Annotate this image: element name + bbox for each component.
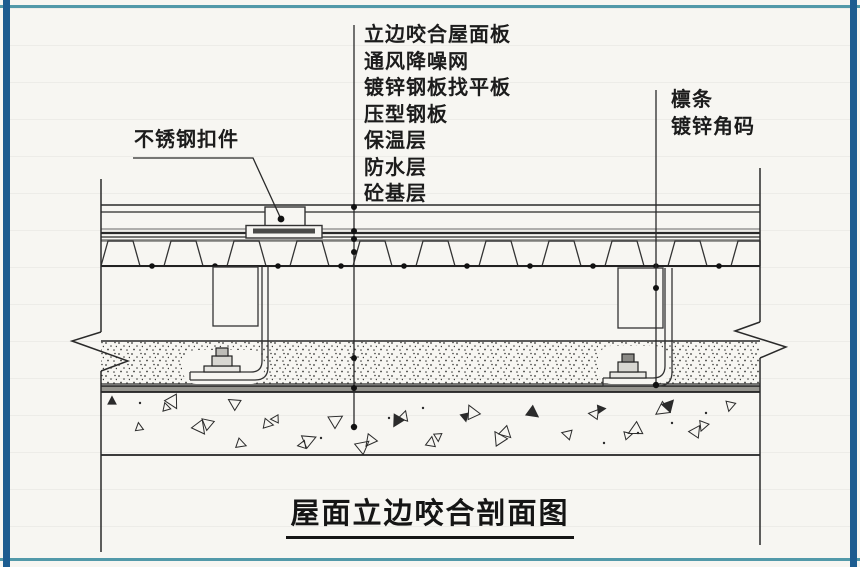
callout-ventilation-mesh: 通风降噪网 <box>364 49 511 76</box>
roof-panel-lines <box>101 205 760 241</box>
drawing-title: 屋面立边咬合剖面图 <box>286 490 573 539</box>
purlin-callout-list: 檩条 镀锌角码 <box>671 87 755 141</box>
callout-stainless-clip: 不锈钢扣件 <box>134 127 239 154</box>
callout-standing-seam-panel: 立边咬合屋面板 <box>364 22 511 49</box>
callout-profiled-steel-sheet: 压型钢板 <box>364 102 511 129</box>
callout-galvanized-angle: 镀锌角码 <box>671 114 755 141</box>
callout-galvanized-leveling-sheet: 镀锌钢板找平板 <box>364 75 511 102</box>
callout-purlin: 檩条 <box>671 87 755 114</box>
insulation-layer <box>101 341 760 384</box>
callout-insulation-layer: 保温层 <box>364 128 511 155</box>
leader-clip-label <box>133 158 284 222</box>
waterproof-layer <box>101 386 760 392</box>
callout-waterproof-layer: 防水层 <box>364 155 511 182</box>
callout-concrete-base: 砼基层 <box>364 181 511 208</box>
profiled-steel-deck <box>101 241 760 269</box>
concrete-base-layer <box>101 394 760 455</box>
drawing-title-row: 屋面立边咬合剖面图 <box>0 490 860 539</box>
scanned-construction-detail-page: 立边咬合屋面板 通风降噪网 镀锌钢板找平板 压型钢板 保温层 防水层 砼基层 不… <box>0 0 860 567</box>
layer-callout-list: 立边咬合屋面板 通风降噪网 镀锌钢板找平板 压型钢板 保温层 防水层 砼基层 <box>364 22 511 208</box>
purlin-left <box>213 267 258 326</box>
